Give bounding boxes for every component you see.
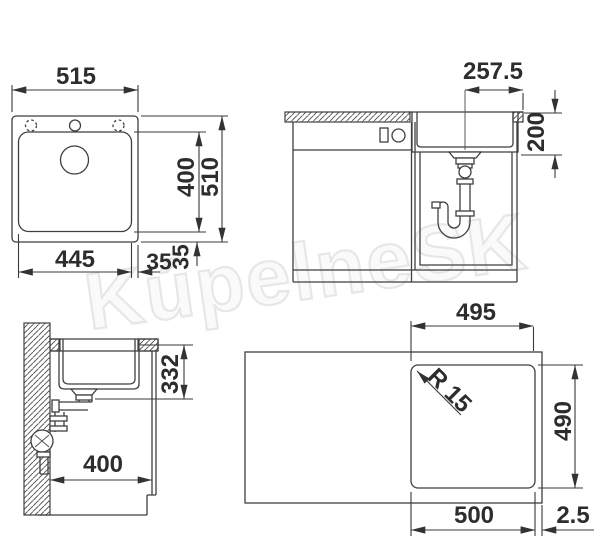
- worktop-left: [285, 112, 410, 122]
- side-section-view: [24, 323, 193, 515]
- dim-basin-depth: 400: [175, 157, 199, 197]
- trap-ball-joint: [459, 166, 471, 178]
- dim-basin-width: 445: [55, 248, 95, 272]
- dim-overall-depth: 510: [199, 157, 223, 197]
- dim-wall-clearance: 400: [83, 453, 123, 477]
- drain-flange-side: [71, 389, 97, 395]
- drain-nut-side: [76, 395, 92, 400]
- drain-hole: [61, 146, 89, 174]
- front-section-view: [285, 90, 562, 282]
- trap-pipe: [460, 184, 470, 212]
- dim-drain-offset: 257.5: [463, 60, 523, 84]
- wall: [24, 323, 50, 515]
- dim-edge-distance: 2.5: [556, 504, 589, 528]
- cabinet-front: [38, 351, 156, 515]
- down-pipe-ring-2: [50, 426, 67, 431]
- down-pipe-ring-1: [50, 416, 67, 421]
- tap-hole-center: [70, 120, 81, 131]
- dim-bowl-depth: 200: [525, 112, 549, 152]
- technical-drawing-sheet: KúpelneSK: [0, 0, 600, 544]
- bowl-outer-side: [59, 339, 139, 389]
- dim-bottom-margin: 35: [170, 244, 193, 270]
- bowl-inner-side: [63, 339, 135, 384]
- cabinet-detail-rect: [380, 128, 388, 142]
- trap-coupling-1: [457, 179, 473, 184]
- worktop-outline: [245, 352, 542, 503]
- dim-overall-width: 515: [56, 65, 96, 89]
- tap-hole-right-optional: [113, 120, 124, 131]
- trap-bend: [438, 202, 470, 238]
- tap-hole-left-optional: [26, 120, 37, 131]
- cabinet-outline: [293, 122, 517, 282]
- cutout-view: [245, 321, 594, 536]
- sink-outline: [12, 116, 138, 242]
- outlet-coupling: [37, 452, 50, 457]
- drain-nut: [456, 158, 474, 164]
- trap-coupling-2: [456, 211, 474, 216]
- dim-drain-outlet-height: 332: [159, 354, 183, 394]
- dim-cutout-bottom-width: 500: [454, 504, 494, 528]
- cabinet-detail-knob: [392, 129, 405, 142]
- dim-cutout-top-width: 495: [456, 301, 496, 325]
- basin-outline: [19, 132, 132, 232]
- trap-outlet-nut: [432, 202, 440, 208]
- horizontal-pipe: [58, 400, 92, 410]
- dim-cutout-depth: 490: [552, 401, 576, 441]
- drain-flange: [449, 152, 481, 158]
- pipe-coupling-wall: [52, 400, 59, 412]
